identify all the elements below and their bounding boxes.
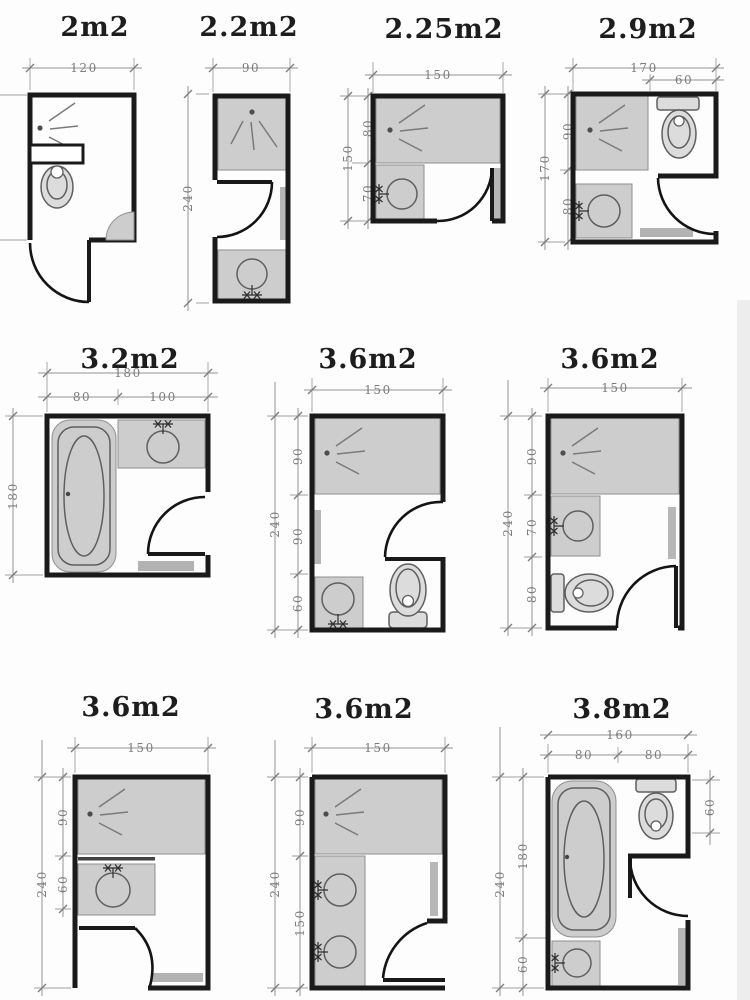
bathtub bbox=[552, 781, 616, 937]
dim-seg-right: 100 bbox=[149, 390, 176, 404]
dim-width: 150 bbox=[601, 381, 628, 395]
dim-height: 240 bbox=[268, 870, 282, 897]
bath-mat bbox=[640, 228, 693, 237]
drain-dot bbox=[565, 855, 569, 859]
dim-height: 240 bbox=[181, 184, 195, 211]
plan-2-2m2-drawing: 90 240 bbox=[175, 50, 340, 315]
plan-title-2-25m2: 2.25m2 bbox=[364, 14, 524, 45]
bathroom-floorplans-sheet: 2m2 2.2m2 2.25m2 2.9m2 3.2m2 3.6m2 3.6m2… bbox=[0, 0, 750, 1000]
door-swing-arc bbox=[617, 566, 676, 628]
plan-2-9m2-drawing: 170 60 170 90 80 bbox=[530, 55, 750, 255]
dim-width: 160 bbox=[606, 728, 633, 742]
door-swing-arc bbox=[385, 502, 443, 557]
dim-seg-mid: 70 bbox=[525, 518, 539, 536]
plan-3-6m2-c-drawing: 150 240 90 60 bbox=[20, 660, 255, 1000]
dim-seg-top: 90 bbox=[291, 447, 305, 465]
shower-zone bbox=[551, 418, 679, 494]
dim-bath: 180 bbox=[516, 842, 530, 869]
toilet bbox=[657, 97, 699, 158]
plan-title-2-2m2: 2.2m2 bbox=[184, 12, 314, 43]
plan-3-6m2-b-drawing: 150 240 90 70 80 bbox=[490, 340, 740, 640]
dim-seg-top: 90 bbox=[525, 447, 539, 465]
plan-title-2m2: 2m2 bbox=[0, 12, 190, 43]
dim-width: 150 bbox=[364, 741, 391, 755]
dim-seg-right: 80 bbox=[645, 748, 663, 762]
dim-width: 150 bbox=[127, 741, 154, 755]
shower-zone bbox=[576, 96, 648, 170]
plan-3-6m2-a-drawing: 150 240 90 90 60 bbox=[255, 340, 490, 640]
counter-edge bbox=[78, 857, 155, 861]
radiator bbox=[430, 862, 438, 916]
bath-mat bbox=[138, 561, 194, 571]
dim-height: 180 bbox=[6, 482, 20, 509]
door-swing-arc bbox=[383, 923, 427, 978]
plan-2m2-drawing: 120 bbox=[0, 55, 190, 310]
dim-width: 150 bbox=[424, 68, 451, 82]
toilet bbox=[41, 166, 73, 208]
plan-2-25m2-drawing: 150 150 80 70 bbox=[330, 55, 525, 240]
dim-width: 170 bbox=[630, 61, 657, 75]
plan-3-8m2-drawing: 160 80 80 240 180 60 60 bbox=[480, 660, 750, 1000]
door-swing-arc bbox=[148, 497, 205, 554]
dim-width: 90 bbox=[242, 61, 260, 75]
corner-shower-tray bbox=[106, 212, 134, 240]
dim-height: 240 bbox=[268, 510, 282, 537]
door-swing-arc bbox=[658, 178, 714, 234]
dim-seg-mid: 60 bbox=[56, 875, 70, 893]
washbasin-shelf bbox=[30, 145, 83, 163]
dim-toilet-depth: 60 bbox=[703, 798, 717, 816]
dim-seg-bottom: 60 bbox=[291, 594, 305, 612]
drain-dot bbox=[66, 492, 70, 496]
shower-zone bbox=[78, 779, 205, 854]
dim-height: 240 bbox=[501, 509, 515, 536]
sink-zone bbox=[315, 856, 365, 986]
dim-height: 150 bbox=[341, 144, 355, 171]
dim-sink: 60 bbox=[516, 955, 530, 973]
shower-head-icon bbox=[37, 103, 78, 149]
dim-toilet-width: 60 bbox=[675, 73, 693, 87]
radiator bbox=[314, 510, 321, 564]
dim-height: 240 bbox=[35, 870, 49, 897]
plan-3-6m2-d-drawing: 150 240 90 150 bbox=[250, 660, 490, 1000]
dim-seg-top: 90 bbox=[56, 808, 70, 826]
plan-title-2-9m2: 2.9m2 bbox=[568, 14, 728, 45]
dim-width: 120 bbox=[70, 61, 97, 75]
dim-seg-top: 90 bbox=[293, 808, 307, 826]
toilet bbox=[551, 574, 613, 612]
shower-zone bbox=[315, 779, 442, 854]
toilet bbox=[636, 779, 676, 839]
bathtub bbox=[52, 420, 116, 572]
door-swing-arc bbox=[630, 858, 688, 916]
dim-width: 150 bbox=[364, 383, 391, 397]
dim-seg-bottom: 80 bbox=[525, 585, 539, 603]
shower-zone bbox=[376, 98, 500, 163]
dim-height: 170 bbox=[538, 154, 552, 181]
dim-seg-left: 80 bbox=[73, 390, 91, 404]
bath-mat bbox=[152, 973, 203, 982]
door-swing-arc bbox=[135, 928, 152, 986]
door-swing-arc bbox=[30, 243, 89, 302]
shower-zone bbox=[315, 418, 440, 494]
door-swing-arc bbox=[437, 168, 492, 221]
sink-zone bbox=[118, 420, 205, 468]
dim-width: 180 bbox=[114, 366, 141, 380]
radiator bbox=[668, 507, 676, 559]
door-swing-arc bbox=[217, 182, 272, 237]
plan-3-2m2-drawing: 180 80 100 180 bbox=[0, 340, 245, 590]
dim-seg-mid: 150 bbox=[293, 909, 307, 936]
dim-seg-left: 80 bbox=[575, 748, 593, 762]
dim-height: 240 bbox=[493, 870, 507, 897]
toilet bbox=[389, 564, 427, 628]
dim-seg-mid: 90 bbox=[291, 527, 305, 545]
